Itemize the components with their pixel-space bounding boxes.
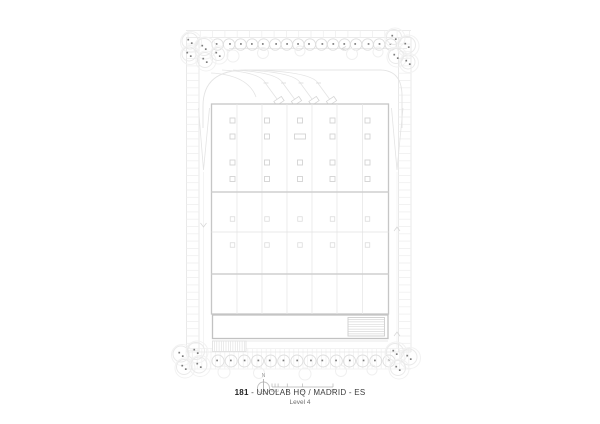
north-label: N [262,373,266,379]
floor-plan-canvas: N 01251020 [0,0,600,424]
drawing-sheet: N 01251020 181 - UNOLAB HQ / MADRID - ES… [0,0,600,424]
site-edge-left [187,38,200,353]
project-number: 181 [235,388,249,397]
sheet-title: 181 - UNOLAB HQ / MADRID - ES [0,388,600,397]
sheet-level: Level 4 [0,399,600,406]
project-name: - UNOLAB HQ / MADRID - ES [249,388,366,397]
site-edge-top [186,31,411,38]
